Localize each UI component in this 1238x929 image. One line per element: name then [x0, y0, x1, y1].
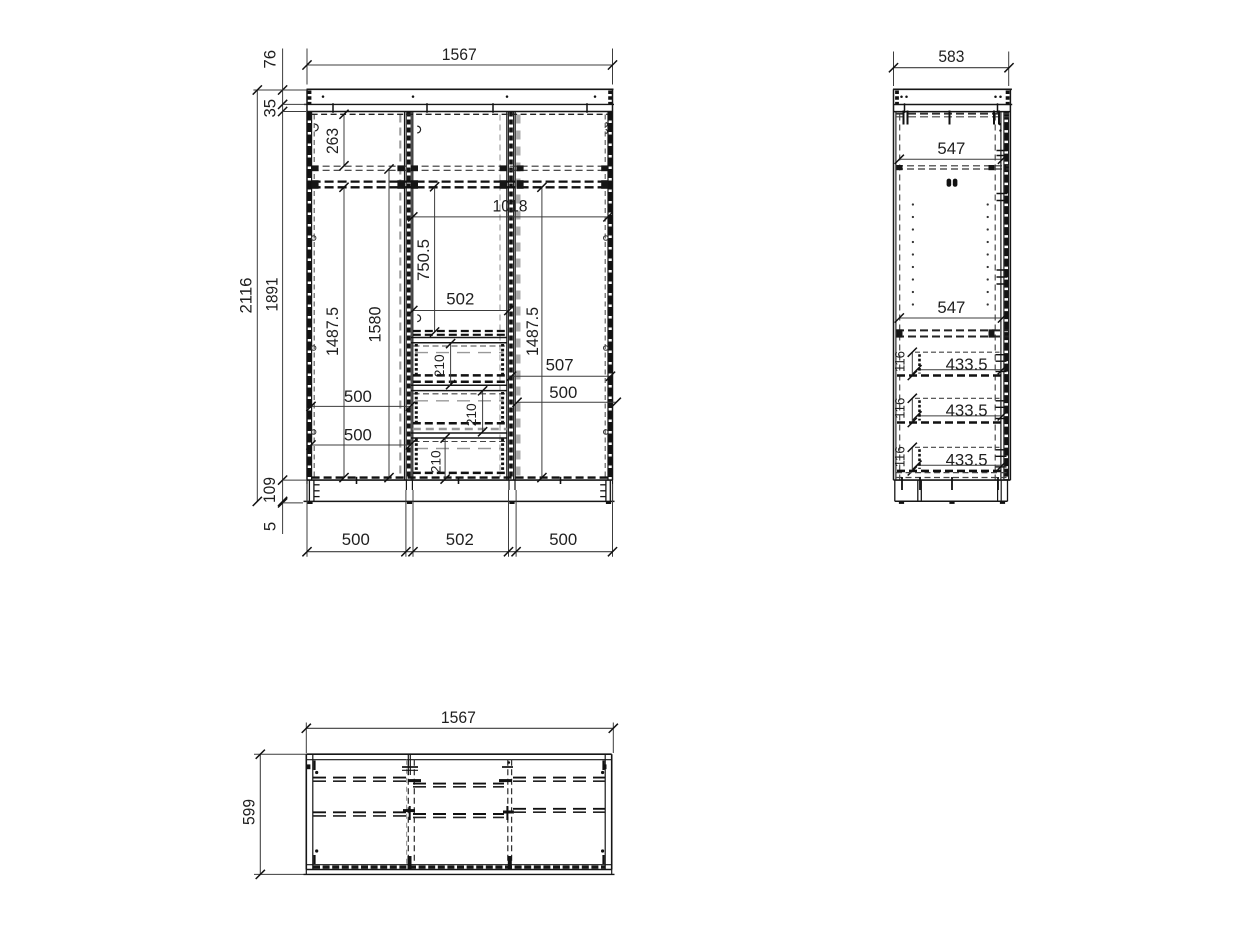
svg-text:2116: 2116 — [236, 278, 255, 314]
svg-text:500: 500 — [344, 387, 372, 406]
svg-text:116: 116 — [892, 351, 908, 372]
svg-text:500: 500 — [549, 530, 577, 549]
svg-text:502: 502 — [446, 530, 474, 549]
svg-text:35: 35 — [260, 99, 279, 118]
svg-text:500: 500 — [344, 425, 372, 444]
svg-text:1487.5: 1487.5 — [323, 307, 342, 356]
svg-text:500: 500 — [342, 530, 370, 549]
svg-text:116: 116 — [892, 446, 908, 467]
svg-text:507: 507 — [546, 355, 574, 374]
svg-text:750.5: 750.5 — [414, 239, 433, 281]
svg-text:263: 263 — [323, 128, 342, 154]
svg-text:583: 583 — [938, 47, 964, 66]
svg-text:502: 502 — [446, 289, 474, 308]
svg-text:599: 599 — [239, 799, 258, 825]
svg-text:433.5: 433.5 — [946, 401, 988, 420]
svg-text:76: 76 — [260, 50, 279, 69]
svg-text:433.5: 433.5 — [946, 355, 988, 374]
svg-text:109: 109 — [260, 477, 279, 503]
svg-text:433.5: 433.5 — [946, 450, 988, 469]
svg-text:547: 547 — [937, 298, 965, 317]
svg-text:1567: 1567 — [442, 45, 477, 64]
svg-text:210: 210 — [431, 354, 447, 377]
svg-text:1891: 1891 — [262, 278, 281, 312]
svg-text:1487.5: 1487.5 — [523, 307, 542, 356]
svg-text:547: 547 — [937, 139, 965, 158]
svg-text:210: 210 — [463, 403, 479, 426]
svg-text:1018: 1018 — [493, 196, 528, 215]
svg-text:5: 5 — [261, 522, 280, 531]
svg-text:116: 116 — [892, 398, 908, 419]
svg-text:1567: 1567 — [441, 708, 476, 727]
svg-text:500: 500 — [549, 383, 577, 402]
svg-text:210: 210 — [428, 450, 444, 473]
svg-text:1580: 1580 — [365, 307, 384, 343]
